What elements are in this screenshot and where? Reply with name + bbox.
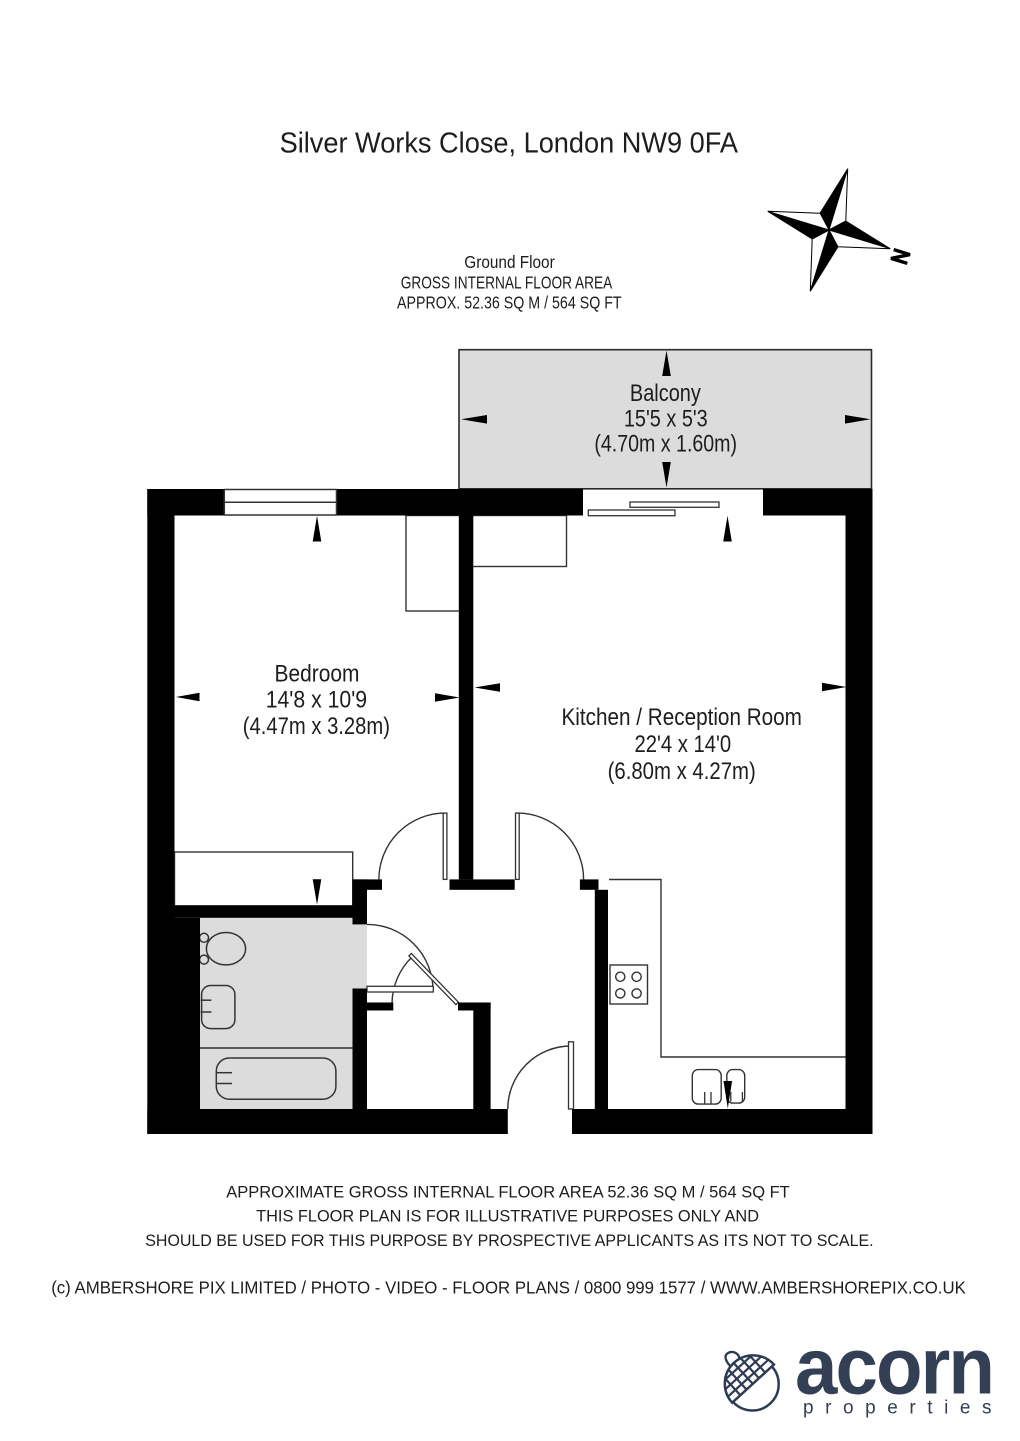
svg-text:Bedroom: Bedroom	[275, 660, 360, 687]
svg-text:APPROX. 52.36 SQ M / 564 SQ FT: APPROX. 52.36 SQ M / 564 SQ FT	[397, 293, 622, 313]
svg-text:SHOULD BE USED FOR THIS PURPOS: SHOULD BE USED FOR THIS PURPOSE BY PROSP…	[145, 1232, 873, 1250]
svg-text:22'4 x 14'0: 22'4 x 14'0	[634, 731, 731, 758]
svg-text:(c) AMBERSHORE PIX LIMITED / P: (c) AMBERSHORE PIX LIMITED / PHOTO - VID…	[51, 1277, 966, 1297]
svg-text:(4.70m x 1.60m): (4.70m x 1.60m)	[594, 431, 737, 458]
svg-text:Kitchen / Reception Room: Kitchen / Reception Room	[562, 704, 802, 731]
svg-text:(4.47m x 3.28m): (4.47m x 3.28m)	[243, 713, 390, 740]
svg-text:APPROXIMATE GROSS INTERNAL FLO: APPROXIMATE GROSS INTERNAL FLOOR AREA 52…	[226, 1184, 790, 1202]
svg-text:14'8 x 10'9: 14'8 x 10'9	[266, 686, 367, 713]
svg-text:GROSS INTERNAL FLOOR AREA: GROSS INTERNAL FLOOR AREA	[401, 272, 613, 292]
svg-text:Balcony: Balcony	[630, 380, 701, 407]
svg-text:properties: properties	[803, 1398, 992, 1419]
svg-text:THIS FLOOR PLAN IS FOR ILLUSTR: THIS FLOOR PLAN IS FOR ILLUSTRATIVE PURP…	[256, 1208, 759, 1226]
svg-text:(6.80m x 4.27m): (6.80m x 4.27m)	[608, 758, 756, 785]
svg-text:15'5 x 5'3: 15'5 x 5'3	[624, 405, 708, 432]
svg-text:Ground Floor: Ground Floor	[464, 252, 555, 272]
svg-text:Silver Works Close, London NW9: Silver Works Close, London NW9 0FA	[280, 128, 739, 160]
